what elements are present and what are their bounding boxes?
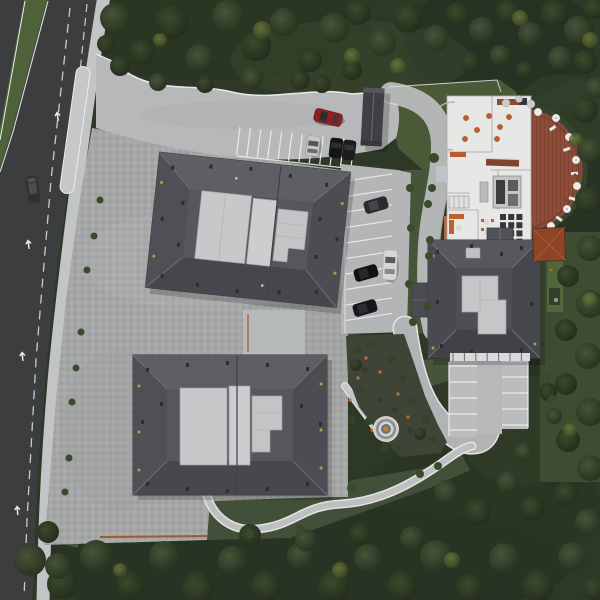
island-tree	[97, 35, 115, 53]
bush	[97, 197, 104, 204]
roof-vent	[277, 290, 280, 294]
bush	[62, 489, 69, 496]
tree	[212, 0, 244, 32]
flower	[396, 392, 399, 395]
tree	[218, 546, 246, 574]
bush	[423, 302, 431, 310]
roof-vent	[226, 361, 229, 365]
tree	[490, 45, 510, 65]
tree	[434, 480, 458, 504]
flower	[348, 398, 351, 401]
bush	[91, 233, 98, 240]
bush	[406, 184, 414, 192]
clubhouse	[508, 194, 518, 206]
bush	[428, 184, 436, 192]
dormer-light	[138, 431, 141, 434]
clubhouse	[565, 199, 568, 202]
tree	[572, 97, 598, 123]
entry-walk	[436, 166, 448, 182]
roof-vent	[314, 255, 317, 259]
tree	[554, 482, 578, 506]
tree	[186, 44, 214, 72]
roof-vent	[226, 489, 229, 493]
speckle-tree	[332, 562, 348, 578]
garden-bush	[409, 397, 418, 406]
roof-vent	[266, 487, 269, 491]
speckle-tree	[444, 552, 460, 568]
clubhouse	[481, 219, 484, 222]
tree	[45, 553, 71, 579]
tree	[149, 73, 167, 91]
roof-vent	[177, 242, 180, 246]
roof-vent	[318, 217, 321, 221]
kiosk	[361, 87, 391, 151]
tree	[540, 0, 568, 28]
tree	[393, 3, 423, 33]
site-plan-rendering	[0, 0, 600, 600]
roof-vent	[436, 250, 439, 254]
tree	[555, 373, 577, 395]
garden-bush	[354, 346, 362, 354]
roof-vent	[300, 404, 303, 408]
bush	[539, 372, 551, 384]
garden-tree	[350, 359, 362, 371]
tree	[446, 2, 470, 26]
tree	[575, 343, 600, 369]
vehicles	[385, 269, 395, 275]
tree	[270, 8, 298, 36]
tree	[557, 265, 579, 287]
roof-vent	[520, 348, 523, 352]
garden-bush	[399, 375, 407, 383]
clubhouse	[571, 151, 574, 154]
bush	[429, 153, 439, 163]
planter-sphere	[516, 96, 523, 103]
lounge-sofa	[449, 214, 464, 219]
tree	[110, 56, 130, 76]
tree	[515, 443, 533, 461]
dormer-light	[138, 385, 141, 388]
dormer-light	[320, 429, 323, 432]
drives	[140, 101, 340, 129]
roof-vent	[186, 487, 189, 491]
flower	[406, 415, 409, 418]
tree	[555, 319, 577, 341]
garden-bush	[422, 415, 430, 423]
umbrella	[573, 182, 581, 190]
dining-table	[463, 115, 468, 120]
clubhouse	[559, 129, 562, 132]
roof-vent	[289, 174, 292, 178]
clubhouse	[566, 208, 568, 210]
counter-orange	[450, 152, 466, 157]
bush	[547, 395, 557, 405]
tree	[400, 526, 424, 550]
clubhouse	[575, 159, 577, 161]
bush	[416, 470, 424, 478]
planter-sphere	[527, 100, 535, 108]
lot-bays-right	[502, 355, 528, 429]
roof-vent	[500, 252, 503, 256]
bush	[69, 399, 76, 406]
c-wall-strip	[450, 353, 530, 361]
bush	[409, 318, 417, 326]
bush	[295, 525, 305, 535]
b-flat-roof	[180, 388, 227, 465]
speckle-tree	[390, 58, 406, 74]
clubhouse	[481, 228, 484, 231]
bush	[434, 462, 442, 470]
flower	[356, 376, 359, 379]
tree	[546, 408, 562, 424]
garden-tree	[414, 428, 426, 440]
roof-vent	[315, 290, 318, 294]
tree	[80, 540, 112, 572]
flower	[364, 356, 367, 359]
roof-vent	[141, 420, 144, 424]
tree	[129, 39, 155, 65]
tree	[354, 544, 382, 572]
clubhouse	[456, 225, 462, 231]
fountain-garden	[407, 427, 413, 433]
bush	[246, 530, 254, 538]
tree	[516, 61, 534, 79]
roof-vent	[306, 482, 309, 486]
bush	[73, 365, 80, 372]
gazebo-garden	[554, 298, 558, 302]
tree	[387, 571, 417, 600]
aerial-render-canvas	[0, 0, 600, 600]
roof-vent	[319, 422, 322, 426]
speckle-tree	[344, 48, 360, 64]
tree	[313, 75, 331, 93]
vehicles	[385, 257, 395, 264]
speckle-tree	[113, 563, 127, 577]
clubhouse	[508, 180, 518, 191]
tree	[290, 70, 310, 90]
bush	[78, 329, 85, 336]
dormer-light	[138, 469, 141, 472]
building-c	[412, 228, 545, 365]
roof-vent	[306, 367, 309, 371]
bush	[84, 267, 91, 274]
tree	[14, 544, 46, 576]
tree	[149, 541, 179, 571]
roof-vent	[160, 402, 163, 406]
tree	[573, 50, 597, 74]
dining-table	[497, 124, 502, 129]
bush	[426, 236, 434, 244]
tree	[575, 509, 600, 535]
clubhouse	[574, 174, 577, 177]
tree	[241, 67, 263, 89]
roof-vent	[160, 217, 163, 221]
bush	[347, 483, 357, 493]
umbrella	[534, 108, 542, 116]
garden-bush	[429, 435, 437, 443]
tree	[100, 3, 130, 33]
garden-bush	[396, 445, 403, 452]
dormer-light	[320, 467, 323, 470]
tree	[298, 48, 322, 72]
speckle-tree	[582, 292, 598, 308]
clubhouse	[555, 117, 557, 119]
planter-sphere	[502, 99, 510, 107]
roof-vent	[161, 274, 164, 278]
fountain-garden	[377, 397, 383, 403]
a-flat-roof	[195, 191, 252, 264]
roof-vent	[249, 167, 252, 171]
tree	[196, 75, 214, 93]
bush	[425, 252, 433, 260]
roof-vent	[181, 201, 184, 205]
roof-vent	[325, 183, 328, 187]
lot-bays-left	[449, 361, 477, 437]
dining-table	[494, 136, 499, 141]
dormer-light	[534, 343, 537, 346]
vehicles	[28, 183, 37, 195]
speckle-tree	[569, 133, 583, 147]
building-b	[133, 355, 332, 500]
garden-bush	[387, 355, 396, 364]
tree	[465, 499, 491, 525]
tree	[460, 52, 480, 72]
bush	[405, 280, 413, 288]
fountain-center	[383, 426, 388, 431]
garden-bush	[381, 443, 389, 451]
garden-bush	[357, 386, 365, 394]
roof-vent	[520, 246, 523, 250]
tree	[251, 571, 281, 600]
roof-vent	[235, 289, 238, 293]
roof-vent	[436, 300, 439, 304]
speckle-tree	[582, 32, 598, 48]
roof-vent	[335, 237, 338, 241]
dormer-light	[320, 383, 323, 386]
tree	[497, 471, 519, 493]
dining-table	[474, 127, 479, 132]
speckle-tree	[563, 423, 577, 437]
tree	[520, 496, 544, 520]
gazebo-garden	[549, 288, 560, 305]
clubhouse	[496, 180, 505, 204]
roof-vent	[440, 344, 443, 348]
bush	[424, 200, 432, 208]
gazebo-garden	[550, 269, 553, 272]
tree	[37, 521, 59, 543]
speckle-tree	[253, 21, 271, 39]
tree	[548, 46, 572, 70]
speckle-tree	[153, 33, 167, 47]
tree	[469, 17, 495, 43]
lot-aisle	[477, 356, 502, 434]
b-flat-roof	[229, 386, 250, 465]
tree	[319, 13, 349, 43]
kitchen-island	[480, 182, 488, 202]
fountain-garden	[362, 367, 368, 373]
clubhouse	[491, 219, 494, 222]
fountain-garden	[392, 407, 398, 413]
roof-vent	[470, 244, 473, 248]
roof-vent	[209, 164, 212, 168]
entry-walk-b	[243, 310, 305, 356]
lounge-sofa	[449, 220, 454, 234]
dining-table	[506, 114, 511, 119]
tree	[349, 523, 371, 545]
tree	[575, 187, 600, 213]
roof-vent	[196, 283, 199, 287]
building-a	[145, 152, 356, 314]
roof-vent	[146, 368, 149, 372]
roof-vent	[266, 363, 269, 367]
roof-vent	[146, 482, 149, 486]
dining-table	[486, 113, 491, 118]
tree	[345, 0, 371, 25]
roof-vent	[171, 165, 174, 169]
dining-table	[462, 136, 467, 141]
c-flat-small	[466, 248, 480, 258]
speckle-tree	[512, 10, 528, 26]
retaining-wall	[100, 536, 207, 537]
tree	[423, 25, 449, 51]
white-car-driving	[382, 250, 398, 281]
roof-vent	[186, 363, 189, 367]
dormer-light	[432, 347, 435, 350]
garden-bush	[348, 416, 356, 424]
garden-bush	[367, 340, 375, 348]
flower	[378, 370, 381, 373]
tree	[558, 542, 586, 570]
roof-vent	[530, 302, 533, 306]
tree	[368, 28, 396, 56]
garden-bush	[365, 417, 373, 425]
tree	[489, 543, 519, 573]
bush	[407, 224, 415, 232]
bush	[66, 455, 73, 462]
